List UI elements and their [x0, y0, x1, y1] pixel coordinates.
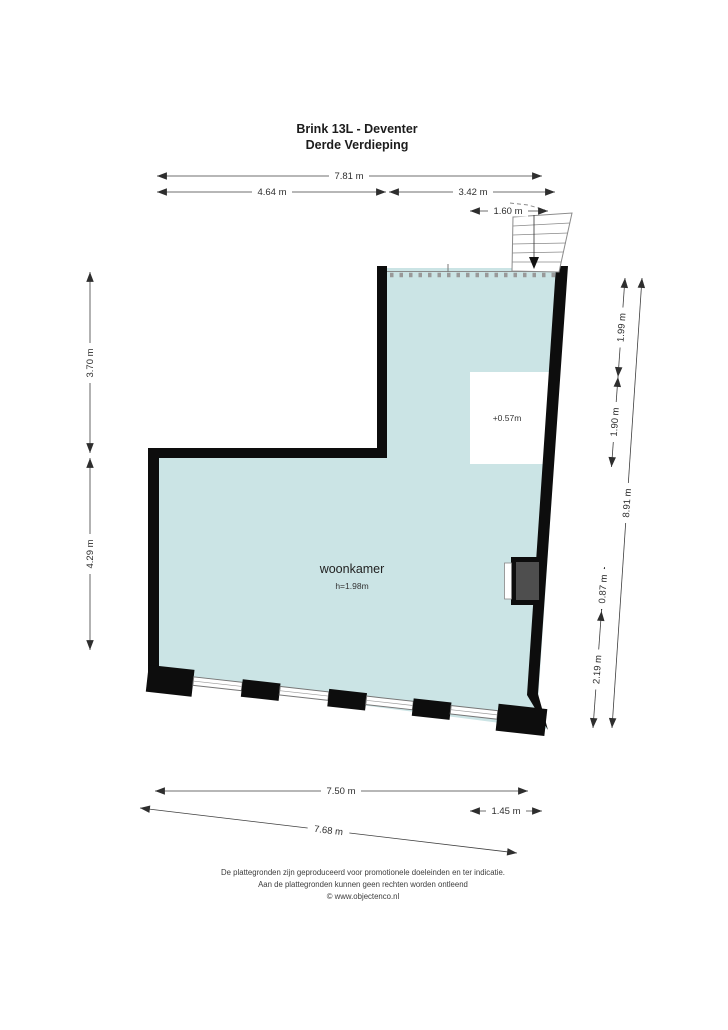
dim-label: 4.29 m: [85, 539, 96, 568]
footer-disclaimer: De plattegronden zijn geproduceerd voor …: [221, 868, 505, 901]
dimension-left-lower: 4.29 m: [85, 458, 97, 650]
dim-label: 7.68 m: [313, 824, 343, 838]
title-floor: Derde Verdieping: [306, 138, 409, 152]
shaft-side-panel: [505, 563, 512, 599]
dimension-right-seg1: 1.99 m: [615, 278, 629, 377]
footer-line-1: De plattegronden zijn geproduceerd voor …: [221, 868, 505, 877]
stair-outline: [512, 213, 572, 272]
room-name-label: woonkamer: [319, 562, 385, 576]
dimension-bottom-right: 1.45 m: [470, 806, 542, 818]
dimension-bottom-inner: 7.50 m: [155, 786, 528, 798]
dimension-top-total: 7.81 m: [157, 171, 542, 183]
dimension-right-seg4: 2.19 m: [590, 611, 604, 728]
title-address: Brink 13L - Deventer: [296, 122, 417, 136]
dimension-right-seg2: 1.90 m: [608, 377, 622, 467]
dim-label: 1.60 m: [493, 206, 522, 217]
shaft-core: [516, 562, 539, 600]
wall-corner-left: [146, 665, 195, 697]
dim-label: 1.90 m: [609, 407, 622, 437]
wall-upper-left: [377, 266, 387, 458]
dim-label: 3.70 m: [85, 348, 96, 377]
floorplan-page: Brink 13L - Deventer Derde Verdieping +0…: [0, 0, 728, 1030]
dim-label: 7.81 m: [334, 171, 363, 182]
platform-level-label: +0.57m: [493, 413, 522, 423]
dimension-left-upper: 3.70 m: [85, 272, 97, 453]
shaft: [505, 557, 545, 605]
dimension-top-right: 3.42 m: [389, 187, 555, 199]
wall-corner-right: [496, 704, 548, 736]
dim-label: 8.91 m: [621, 488, 634, 518]
floorplan-drawing: Brink 13L - Deventer Derde Verdieping +0…: [0, 0, 728, 1030]
dim-label: 0.87 m: [597, 574, 610, 604]
wall-step: [148, 448, 387, 458]
dimension-bottom-outer: 7.68 m: [140, 808, 517, 853]
dim-label: 1.99 m: [615, 313, 628, 343]
room-height-label: h=1.98m: [335, 581, 368, 591]
footer-line-2: Aan de plattegronden kunnen geen rechten…: [258, 880, 468, 889]
room-floor-area: [151, 268, 567, 729]
wall-lower-left: [148, 448, 159, 678]
dimension-top-left: 4.64 m: [157, 187, 386, 199]
dim-label: 4.64 m: [257, 187, 286, 198]
dim-label: 2.19 m: [591, 655, 604, 685]
raised-platform: +0.57m: [470, 372, 549, 464]
dim-label: 7.50 m: [326, 786, 355, 797]
dim-label: 3.42 m: [458, 187, 487, 198]
dimension-right-seg3: 0.87 m: [596, 567, 610, 611]
plan-title: Brink 13L - Deventer Derde Verdieping: [296, 122, 417, 152]
dim-label: 1.45 m: [491, 806, 520, 817]
footer-line-3: © www.objectenco.nl: [327, 892, 400, 901]
